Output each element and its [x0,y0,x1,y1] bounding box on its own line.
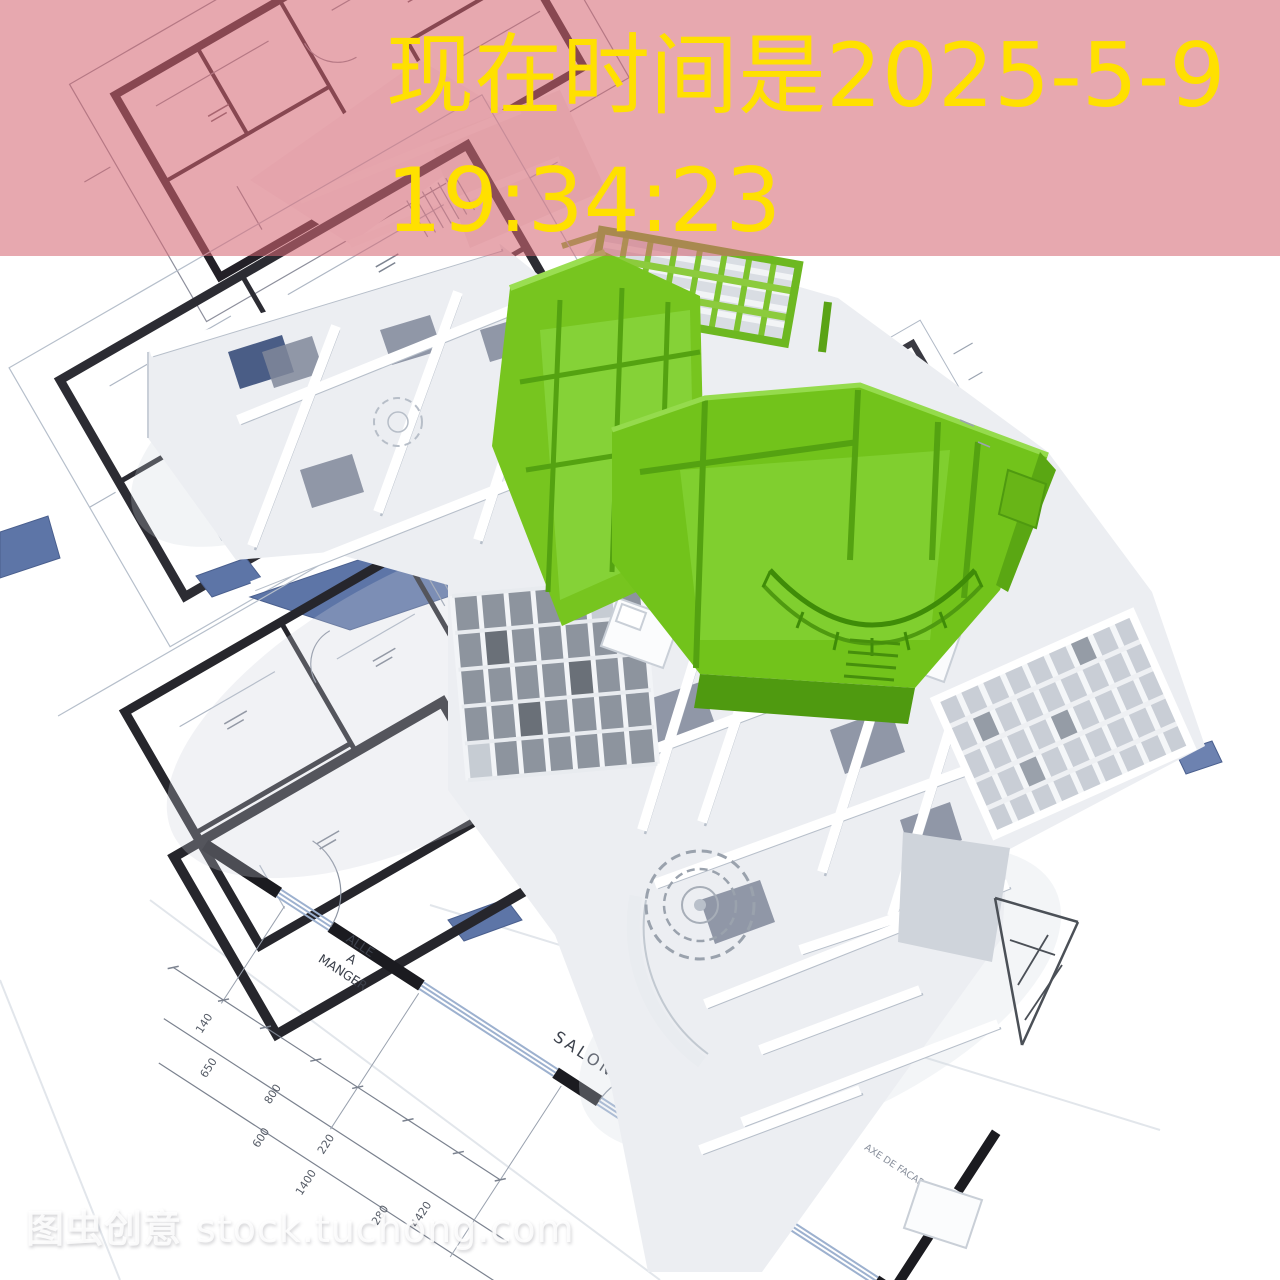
gray-slab [898,832,1010,962]
dimension-label: 650 [197,1056,219,1081]
label-dining-room: MANGER [316,951,371,994]
banner-line1: 现在时间是2025-5-9 [386,14,1268,139]
banner-line2: 19:34:23 [386,139,1268,264]
banner: 现在时间是2025-5-9 19:34:23 [0,0,1280,264]
watermark: 图虫创意stock.tuchong.com [26,1198,575,1253]
watermark-brand: 图虫创意 [26,1207,182,1251]
stock-photo-architecture: 140 650 800 600 220 1400 280 4420 5400 A… [0,0,1280,1280]
dimension-label: 220 [315,1132,337,1157]
dimension-label: 600 [250,1125,272,1150]
dimension-label: 1400 [293,1167,319,1198]
dimension-label: 140 [193,1011,215,1036]
watermark-site: stock.tuchong.com [196,1207,575,1251]
